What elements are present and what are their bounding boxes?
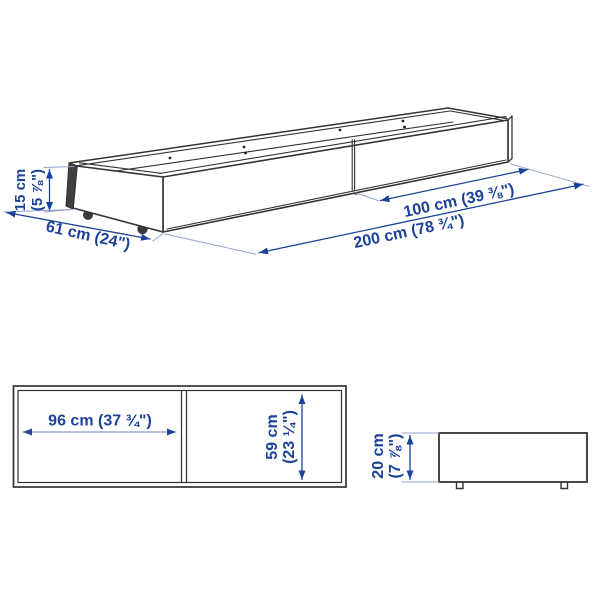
height-dimension-cm: 15 cm [12, 169, 29, 212]
height-dimension-inch: (5 ⅞") [29, 169, 46, 212]
end-view-dimension-lines [402, 433, 439, 482]
top-view-middle-divider [182, 391, 187, 483]
end-height-dimension-cm: 20 cm [370, 433, 387, 478]
end-height-dimension-inch: (7 ⅞") [387, 433, 404, 478]
diagram-linework [0, 0, 600, 600]
product-dimension-diagram: 15 cm (5 ⅞") 61 cm (24") 100 cm (39 ⅜") … [0, 0, 600, 600]
inner-depth-dimension-inch: (23 ¼") [281, 410, 298, 464]
end-view-drawing [439, 433, 587, 489]
inner-depth-dimension-cm: 59 cm [264, 414, 281, 459]
box-right-end-wall [448, 108, 507, 121]
top-view-dimension-lines [23, 395, 302, 480]
end-view-body [439, 433, 587, 482]
end-height-dimension-label: 20 cm (7 ⅞") [370, 433, 404, 478]
box-left-end-face [73, 166, 163, 232]
inner-depth-dimension-label: 59 cm (23 ¼") [264, 410, 298, 464]
end-view-feet [457, 482, 568, 489]
height-dimension-label: 15 cm (5 ⅞") [12, 169, 46, 212]
inner-width-dimension-label: 96 cm (37 ¾") [48, 413, 152, 430]
